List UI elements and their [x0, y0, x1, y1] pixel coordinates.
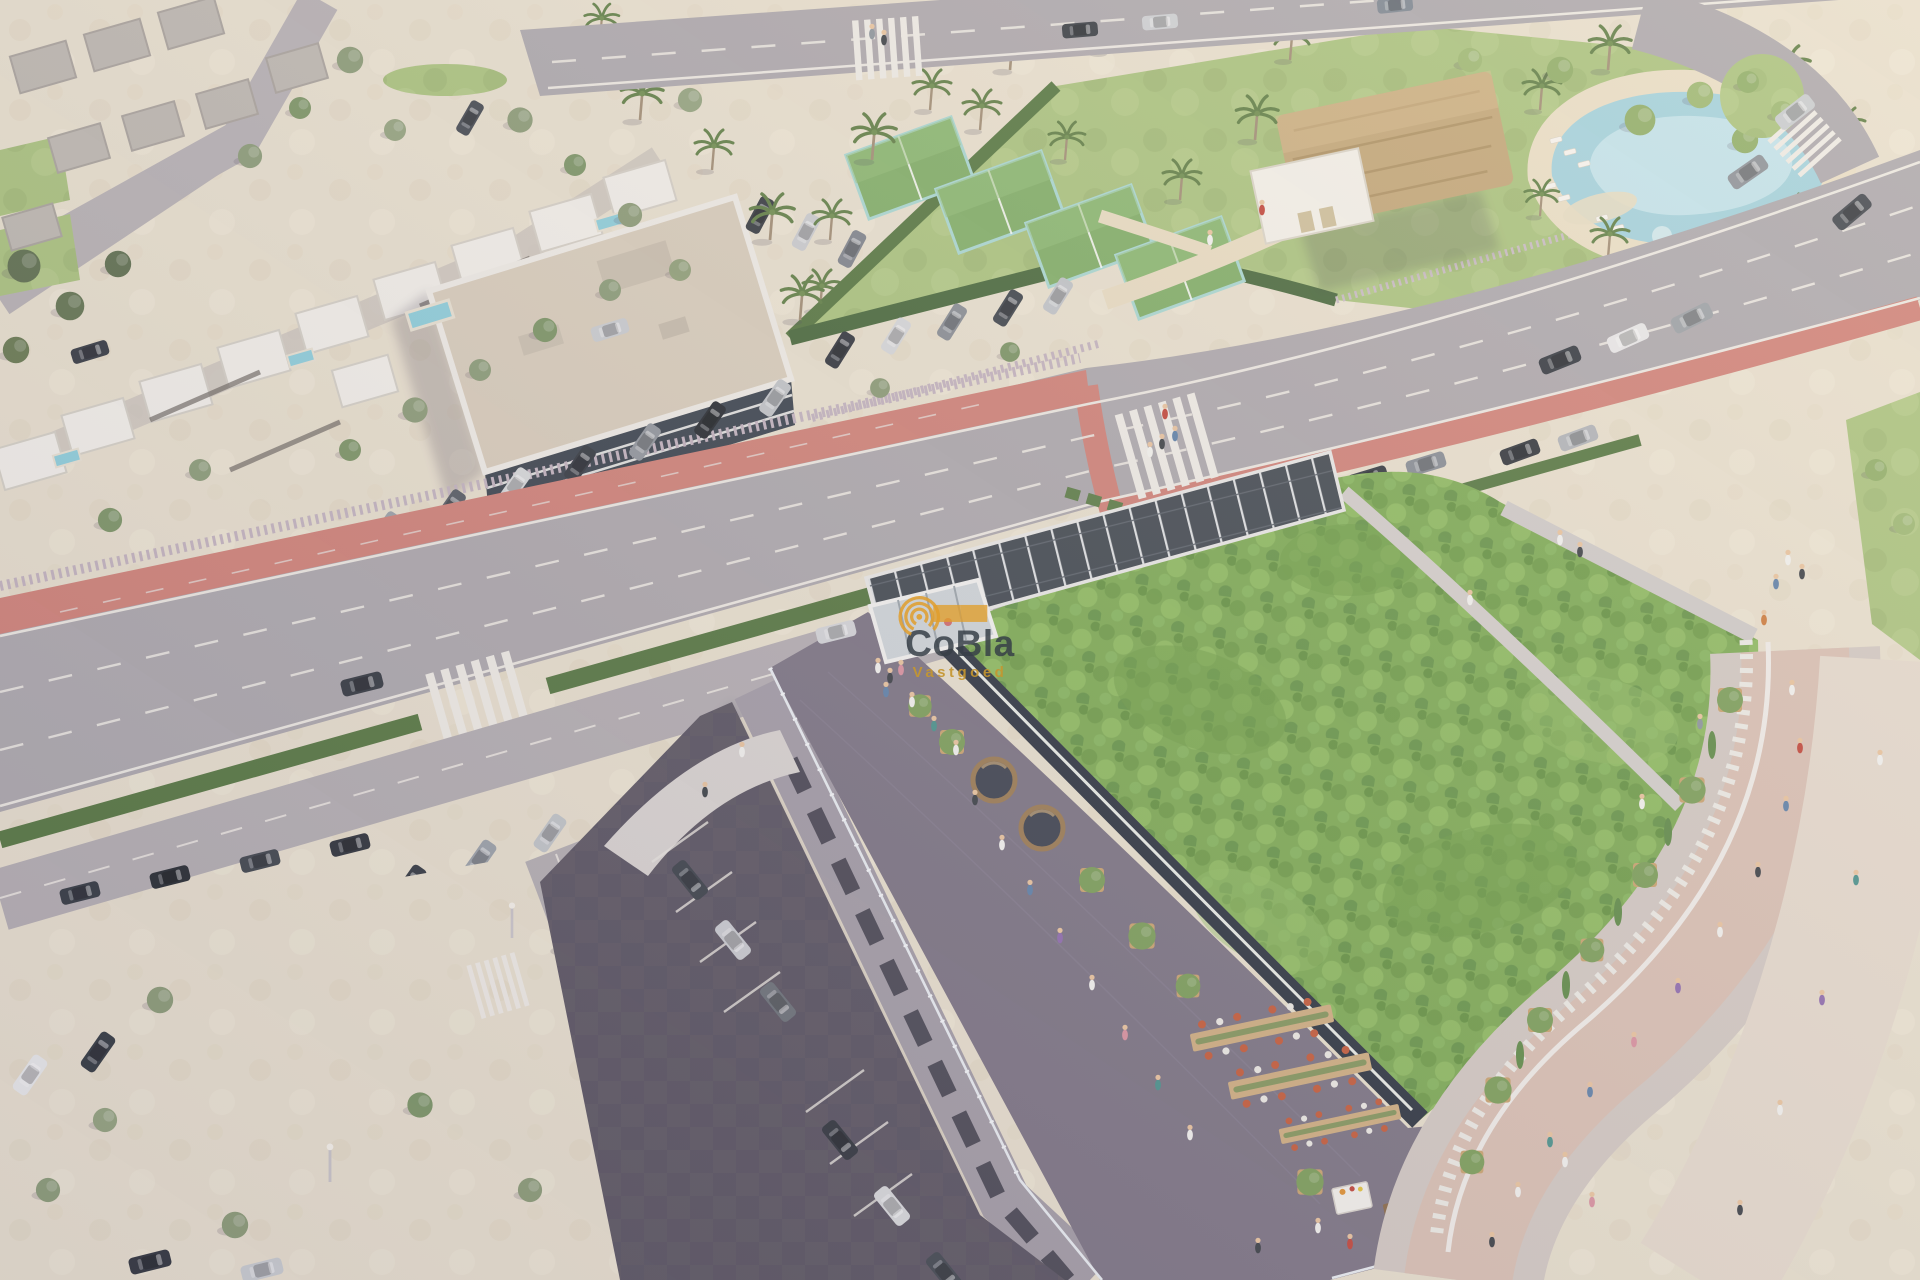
scene-canvas: [0, 0, 1920, 1280]
light-grade: [0, 0, 1920, 1280]
aerial-render: CoBla Vastgoed: [0, 0, 1920, 1280]
